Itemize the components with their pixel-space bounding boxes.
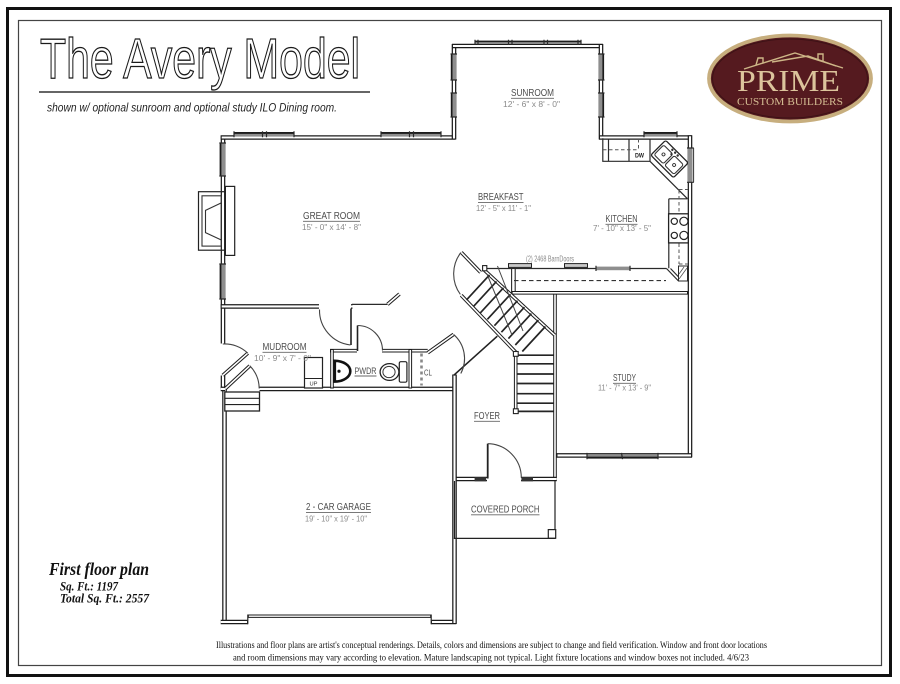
svg-text:Total Sq. Ft.: 2557: Total Sq. Ft.: 2557 bbox=[60, 592, 150, 606]
svg-text:CUSTOM BUILDERS: CUSTOM BUILDERS bbox=[737, 97, 843, 108]
svg-text:11' - 7" x 13' - 9": 11' - 7" x 13' - 9" bbox=[598, 383, 651, 393]
svg-text:BREAKFAST: BREAKFAST bbox=[478, 191, 524, 203]
svg-text:15' - 0" x 14' - 8": 15' - 0" x 14' - 8" bbox=[302, 222, 361, 232]
svg-text:COVERED PORCH: COVERED PORCH bbox=[471, 504, 540, 516]
svg-text:The Avery Model: The Avery Model bbox=[40, 27, 360, 91]
svg-text:(2) 2468 BarnDoors: (2) 2468 BarnDoors bbox=[526, 254, 574, 264]
svg-text:shown w/ optional sunroom and: shown w/ optional sunroom and optional s… bbox=[47, 103, 337, 115]
svg-text:10' - 9" x 7' - 0": 10' - 9" x 7' - 0" bbox=[254, 353, 311, 363]
svg-text:MUDROOM: MUDROOM bbox=[263, 341, 307, 353]
svg-text:FOYER: FOYER bbox=[474, 410, 500, 422]
svg-text:and room dimensions may vary a: and room dimensions may vary according t… bbox=[233, 653, 749, 664]
svg-text:CL: CL bbox=[424, 369, 432, 378]
svg-text:Illustrations and floor plans: Illustrations and floor plans are artist… bbox=[216, 640, 767, 651]
svg-text:First floor plan: First floor plan bbox=[48, 559, 149, 579]
svg-text:GREAT ROOM: GREAT ROOM bbox=[303, 210, 360, 222]
svg-text:PWDR: PWDR bbox=[355, 366, 377, 376]
svg-text:UP: UP bbox=[310, 382, 319, 388]
svg-text:SUNROOM: SUNROOM bbox=[511, 87, 554, 99]
svg-text:12' - 5" x 11' - 1": 12' - 5" x 11' - 1" bbox=[476, 203, 531, 213]
svg-text:12' - 6" x 8' - 0": 12' - 6" x 8' - 0" bbox=[503, 99, 560, 109]
svg-text:2 - CAR GARAGE: 2 - CAR GARAGE bbox=[306, 501, 371, 513]
svg-text:19' - 10" x 19' - 10": 19' - 10" x 19' - 10" bbox=[305, 514, 367, 524]
svg-text:DW: DW bbox=[635, 153, 644, 160]
svg-text:PRIME: PRIME bbox=[737, 63, 840, 98]
svg-text:7' - 10" x 13' - 5": 7' - 10" x 13' - 5" bbox=[593, 223, 651, 233]
